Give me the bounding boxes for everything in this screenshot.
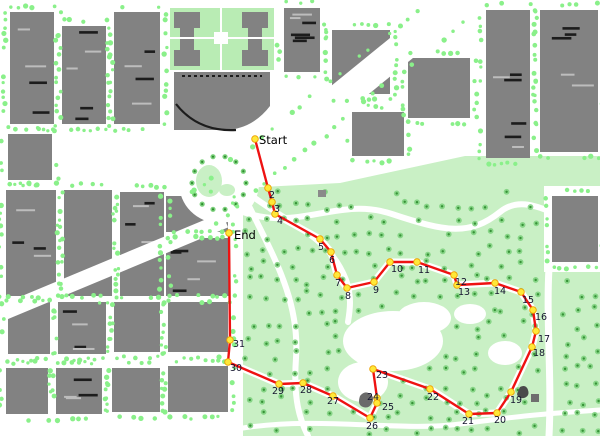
waypoint-label: 20 bbox=[494, 415, 506, 426]
waypoint-label: 13 bbox=[458, 287, 470, 298]
end-label: End bbox=[234, 228, 256, 242]
waypoint-label: 18 bbox=[533, 348, 545, 359]
waypoint-label: 28 bbox=[300, 385, 312, 396]
start-marker bbox=[252, 136, 259, 143]
waypoint-label: 6 bbox=[329, 255, 335, 266]
waypoint-label: 2 bbox=[269, 190, 275, 201]
waypoint-label: 11 bbox=[418, 265, 430, 276]
waypoint-label: 4 bbox=[277, 216, 283, 227]
waypoint-label: 29 bbox=[272, 386, 284, 397]
waypoint-label: 23 bbox=[376, 370, 388, 381]
waypoint-label: 30 bbox=[230, 363, 242, 374]
waypoint-label: 14 bbox=[494, 286, 506, 297]
waypoint-label: 27 bbox=[327, 396, 339, 407]
waypoint-label: 8 bbox=[345, 291, 351, 302]
waypoint-label: 25 bbox=[382, 402, 394, 413]
waypoint-label: 10 bbox=[391, 264, 403, 275]
waypoint-label: 31 bbox=[233, 339, 245, 350]
waypoint-label: 22 bbox=[427, 392, 439, 403]
waypoint-label: 19 bbox=[510, 395, 522, 406]
waypoint-label: 7 bbox=[335, 278, 341, 289]
waypoint-label: 5 bbox=[318, 242, 324, 253]
waypoint-label: 26 bbox=[366, 421, 378, 432]
end-marker bbox=[226, 230, 233, 237]
waypoint-label: 21 bbox=[462, 416, 474, 427]
waypoint-label: 16 bbox=[535, 312, 547, 323]
map-viewport: Start23456789101112131415161718192021222… bbox=[0, 0, 600, 436]
waypoint-label: 3 bbox=[274, 204, 280, 215]
waypoint-label: 17 bbox=[538, 334, 550, 345]
map-canvas[interactable]: Start23456789101112131415161718192021222… bbox=[0, 0, 600, 436]
start-label: Start bbox=[259, 133, 288, 147]
waypoint-label: 24 bbox=[367, 392, 379, 403]
waypoint-label: 9 bbox=[373, 285, 379, 296]
waypoint-label: 15 bbox=[522, 295, 534, 306]
